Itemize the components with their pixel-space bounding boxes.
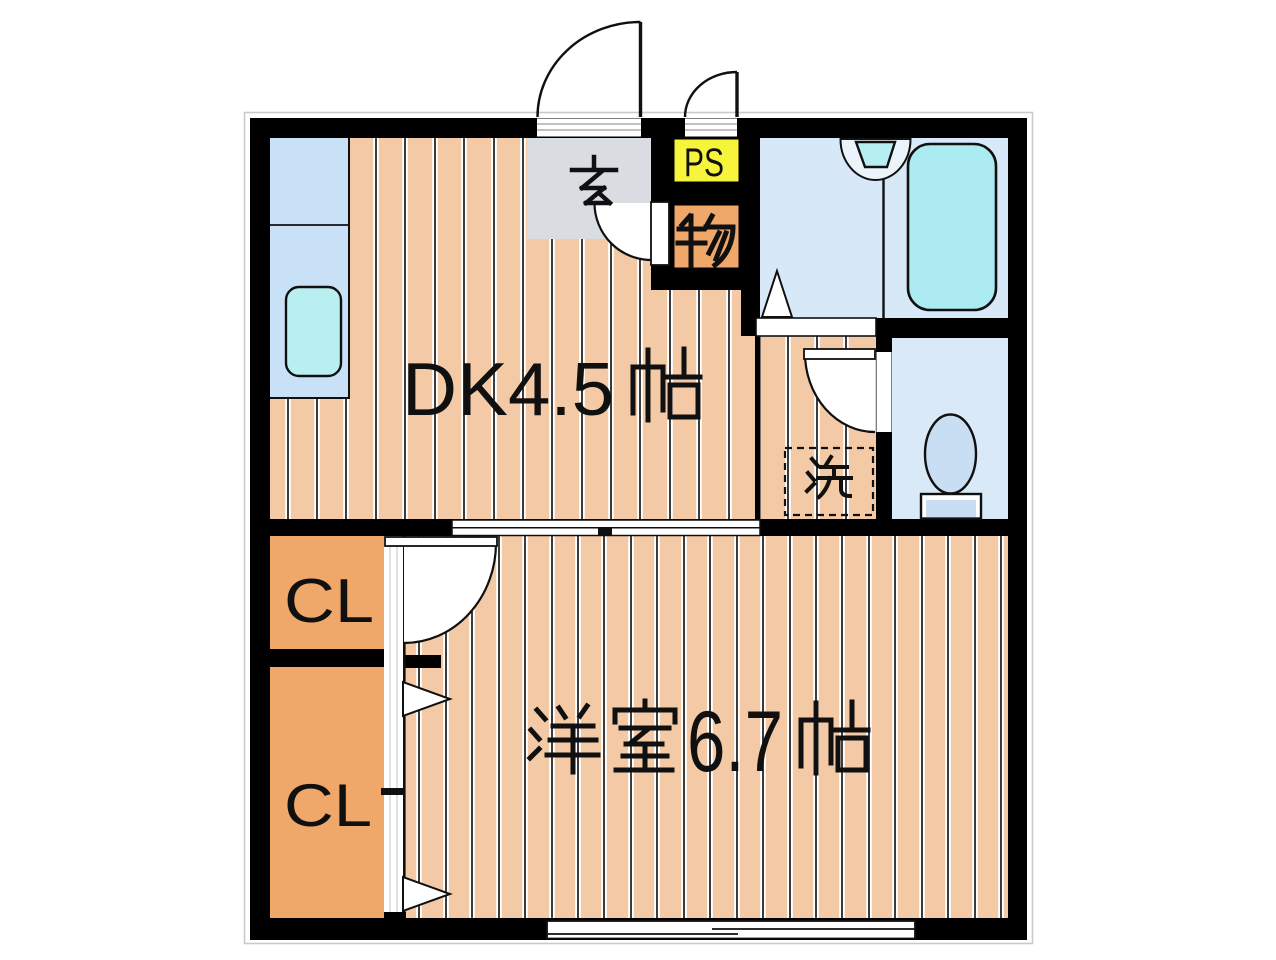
svg-text:PS: PS [684, 141, 724, 185]
svg-text:CL: CL [284, 567, 374, 636]
svg-text:CL: CL [284, 772, 372, 839]
svg-text:DK4.5: DK4.5 [402, 347, 614, 431]
svg-text:6.7: 6.7 [687, 694, 783, 790]
